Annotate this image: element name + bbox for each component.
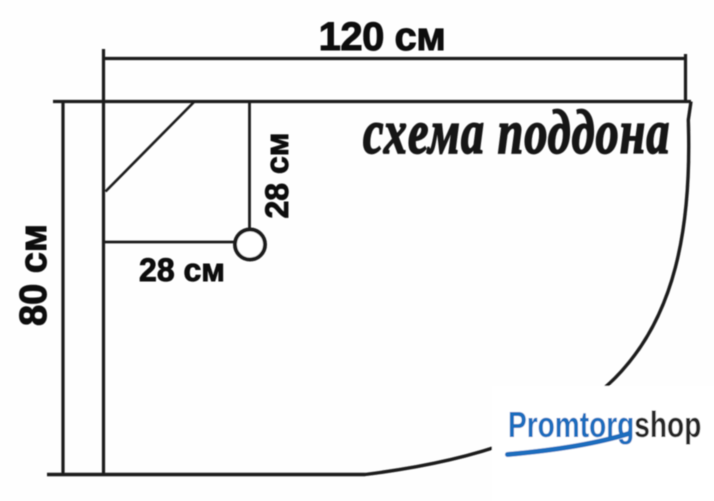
svg-text:схема поддона: схема поддона [363, 97, 670, 166]
svg-text:80 см: 80 см [13, 224, 55, 326]
svg-text:28 см: 28 см [259, 133, 295, 219]
svg-text:28 см: 28 см [139, 252, 225, 288]
svg-text:120 см: 120 см [319, 15, 446, 59]
